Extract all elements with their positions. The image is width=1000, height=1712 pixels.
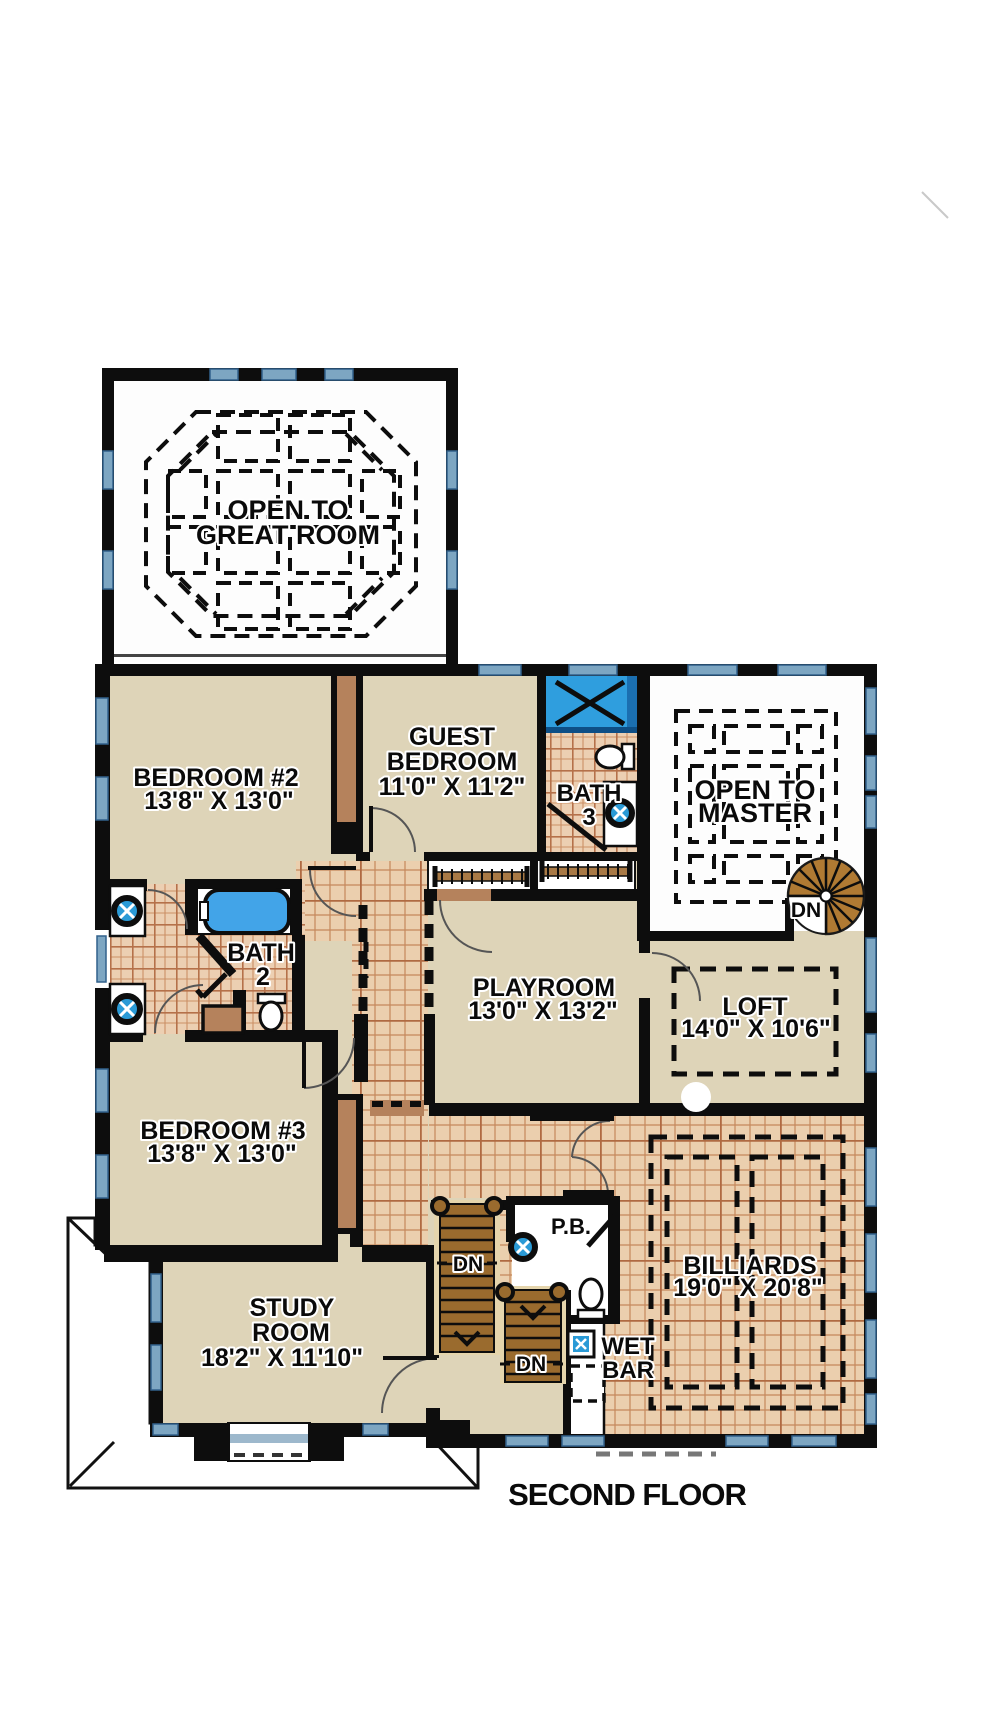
svg-text:14'0" X 10'6": 14'0" X 10'6" [681,1015,831,1043]
svg-text:BAR: BAR [602,1357,654,1384]
svg-text:11'0" X 11'2": 11'0" X 11'2" [379,773,526,801]
svg-text:WET: WET [601,1333,655,1360]
svg-text:GREAT ROOM: GREAT ROOM [196,520,380,550]
svg-text:GUEST: GUEST [409,723,495,751]
svg-text:P.B.: P.B. [551,1214,591,1239]
svg-text:DN: DN [791,899,821,922]
svg-text:SECOND FLOOR: SECOND FLOOR [508,1477,746,1512]
svg-text:STUDY: STUDY [250,1294,335,1322]
svg-text:BEDROOM: BEDROOM [387,748,518,776]
svg-text:3: 3 [582,804,595,831]
svg-text:13'8" X 13'0": 13'8" X 13'0" [144,787,294,815]
svg-text:DN: DN [516,1353,546,1376]
svg-text:13'8" X 13'0": 13'8" X 13'0" [147,1140,297,1168]
svg-text:BATH: BATH [557,780,622,807]
svg-text:2: 2 [256,963,270,991]
svg-text:DN: DN [453,1253,483,1276]
svg-text:ROOM: ROOM [252,1319,330,1347]
svg-text:13'0" X 13'2": 13'0" X 13'2" [468,997,618,1025]
svg-text:18'2" X 11'10": 18'2" X 11'10" [201,1344,363,1372]
svg-text:19'0" X 20'8": 19'0" X 20'8" [673,1274,823,1302]
svg-text:MASTER: MASTER [698,798,812,828]
